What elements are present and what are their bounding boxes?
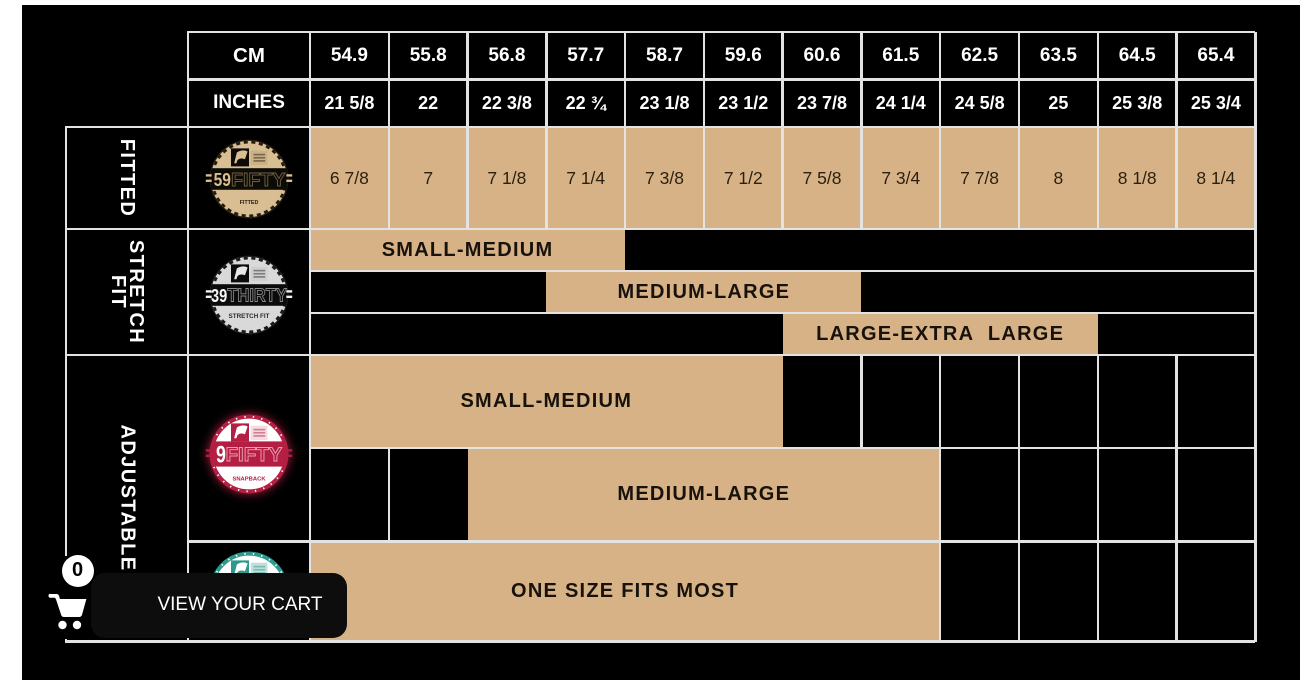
svg-text:39: 39 [211, 286, 227, 307]
svg-text:FIFTY: FIFTY [226, 444, 283, 466]
svg-text:59: 59 [214, 170, 231, 191]
svg-text:FITTED: FITTED [240, 200, 259, 206]
svg-text:FIFTY: FIFTY [231, 170, 286, 191]
svg-text:STRETCH FIT: STRETCH FIT [229, 313, 270, 320]
svg-text:THIRTY: THIRTY [227, 285, 286, 305]
svg-text:SNAPBACK: SNAPBACK [232, 476, 266, 482]
svg-text:9: 9 [216, 441, 226, 468]
